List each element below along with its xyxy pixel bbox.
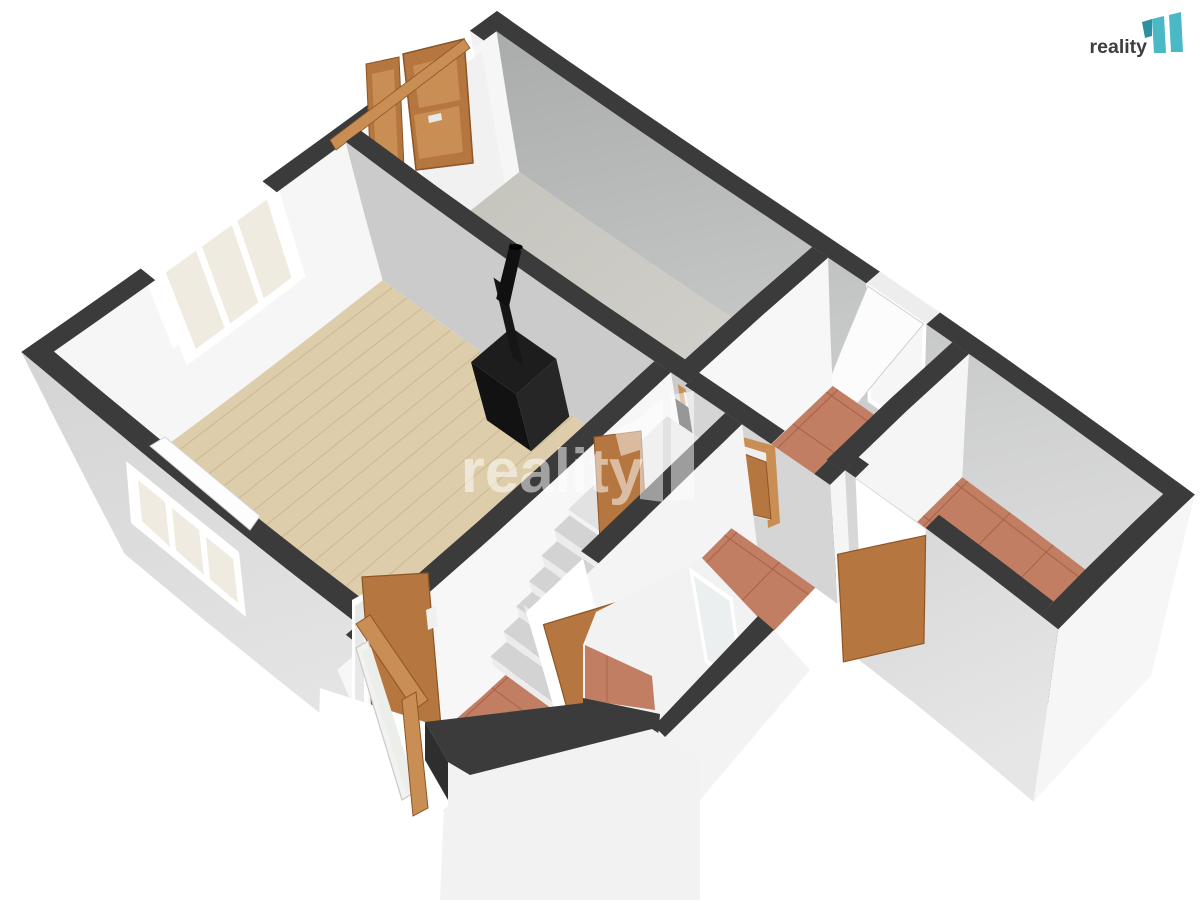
svg-text:reality: reality bbox=[461, 437, 644, 506]
svg-text:reality: reality bbox=[1090, 36, 1148, 58]
